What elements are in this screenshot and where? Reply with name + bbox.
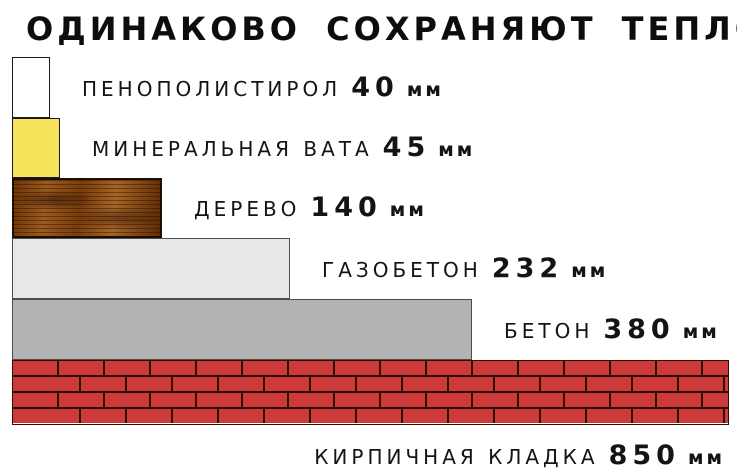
material-name: БЕТОН: [504, 319, 593, 343]
bar-минеральная-вата: [12, 118, 60, 178]
brick-course: [13, 361, 728, 377]
material-name: ДЕРЕВО: [194, 197, 300, 221]
bar-бетон: [12, 299, 472, 360]
thickness-value: 232: [492, 253, 563, 284]
brick-course: [13, 377, 728, 393]
thickness-unit: мм: [407, 79, 444, 101]
material-name: ПЕНОПОЛИСТИРОЛ: [82, 77, 341, 101]
material-name: МИНЕРАЛЬНАЯ ВАТА: [92, 137, 373, 161]
bar-дерево: [12, 178, 162, 238]
thickness-value: 40: [351, 72, 399, 103]
thickness-value: 380: [603, 314, 674, 345]
thickness-unit: мм: [438, 139, 475, 161]
brick-course: [13, 393, 728, 409]
bar-газобетон: [12, 238, 290, 299]
material-name: ГАЗОБЕТОН: [322, 258, 482, 282]
bar-label: ПЕНОПОЛИСТИРОЛ40мм: [82, 72, 444, 103]
thickness-unit: мм: [390, 199, 427, 221]
thickness-unit: мм: [571, 260, 608, 282]
brick-course: [13, 409, 728, 423]
thickness-value: 45: [383, 132, 431, 163]
bar-пенополистирол: [12, 57, 50, 118]
thickness-unit: мм: [683, 321, 720, 343]
insulation-comparison-infographic: ОДИНАКОВО СОХРАНЯЮТ ТЕПЛО ПЕНОПОЛИСТИРОЛ…: [0, 0, 737, 472]
thickness-value: 140: [310, 192, 381, 223]
bar-кирпичная-кладка: [12, 360, 729, 425]
bar-label: БЕТОН380мм: [504, 314, 720, 345]
chart-title: ОДИНАКОВО СОХРАНЯЮТ ТЕПЛО: [26, 10, 737, 48]
thickness-unit: мм: [688, 447, 725, 469]
material-name: КИРПИЧНАЯ КЛАДКА: [314, 445, 598, 469]
bar-label: КИРПИЧНАЯ КЛАДКА850мм: [314, 440, 725, 471]
thickness-value: 850: [609, 440, 680, 471]
bar-label: МИНЕРАЛЬНАЯ ВАТА45мм: [92, 132, 475, 163]
bar-label: ГАЗОБЕТОН232мм: [322, 253, 608, 284]
bar-label: ДЕРЕВО140мм: [194, 192, 427, 223]
